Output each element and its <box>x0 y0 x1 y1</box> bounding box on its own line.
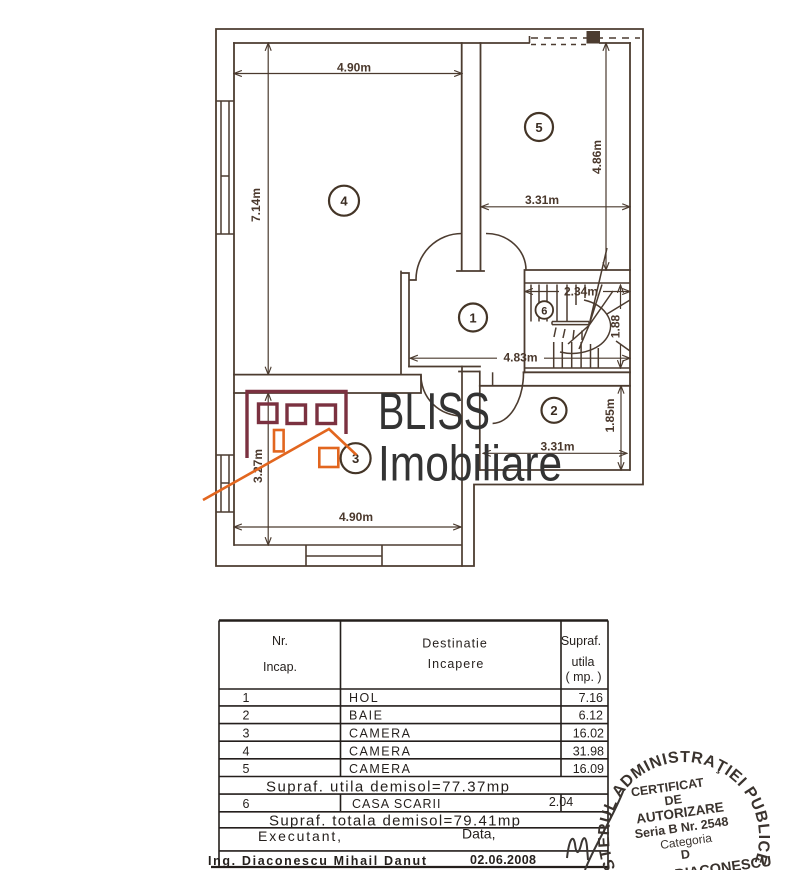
svg-text:2.34m: 2.34m <box>564 285 598 299</box>
svg-text:1: 1 <box>243 691 250 705</box>
svg-text:Nr.: Nr. <box>272 634 288 648</box>
svg-text:4.90m: 4.90m <box>339 510 373 524</box>
svg-text:1.88: 1.88 <box>609 314 623 338</box>
svg-text:Executant,: Executant, <box>258 828 341 844</box>
svg-text:BLISS: BLISS <box>378 382 490 441</box>
svg-text:02.06.2008: 02.06.2008 <box>470 853 536 867</box>
svg-text:Destinatie: Destinatie <box>422 637 488 651</box>
svg-text:4.90m: 4.90m <box>337 61 371 75</box>
svg-text:Imobiliare: Imobiliare <box>378 435 562 491</box>
svg-text:HOL: HOL <box>349 691 379 705</box>
svg-text:Incap.: Incap. <box>263 660 297 674</box>
svg-text:BAIE: BAIE <box>349 709 384 723</box>
svg-text:Incapere: Incapere <box>428 657 485 671</box>
svg-text:7.16: 7.16 <box>579 691 603 705</box>
svg-text:3: 3 <box>243 727 250 741</box>
svg-text:( mp. ): ( mp. ) <box>565 670 601 684</box>
svg-text:Data,: Data, <box>462 826 495 842</box>
svg-text:utila: utila <box>572 655 595 669</box>
svg-text:D: D <box>680 847 691 862</box>
svg-text:6: 6 <box>541 306 547 318</box>
svg-text:6.12: 6.12 <box>579 709 603 723</box>
svg-text:Supraf. utila demisol=77.37mp: Supraf. utila demisol=77.37mp <box>266 779 509 796</box>
svg-text:7.14m: 7.14m <box>249 188 263 222</box>
svg-text:Supraf.: Supraf. <box>561 634 601 648</box>
svg-text:16.09: 16.09 <box>573 762 604 776</box>
svg-text:CAMERA: CAMERA <box>349 727 411 741</box>
svg-text:31.98: 31.98 <box>573 745 604 759</box>
svg-text:2: 2 <box>550 403 557 418</box>
svg-text:16.02: 16.02 <box>573 727 604 741</box>
svg-text:4: 4 <box>340 194 348 209</box>
svg-text:5: 5 <box>535 120 542 135</box>
svg-text:CAMERA: CAMERA <box>349 762 411 776</box>
svg-text:1.85m: 1.85m <box>603 398 617 432</box>
svg-text:2: 2 <box>243 709 250 723</box>
svg-text:4: 4 <box>243 745 250 759</box>
svg-text:1: 1 <box>469 311 476 326</box>
svg-text:6: 6 <box>243 797 250 811</box>
svg-text:CAMERA: CAMERA <box>349 745 411 759</box>
svg-text:4.86m: 4.86m <box>590 140 604 174</box>
svg-text:5: 5 <box>243 762 250 776</box>
svg-text:4.83m: 4.83m <box>503 351 537 365</box>
svg-text:2.04: 2.04 <box>549 795 573 809</box>
svg-text:CASA SCARII: CASA SCARII <box>352 797 442 811</box>
svg-text:3.31m: 3.31m <box>525 193 559 207</box>
